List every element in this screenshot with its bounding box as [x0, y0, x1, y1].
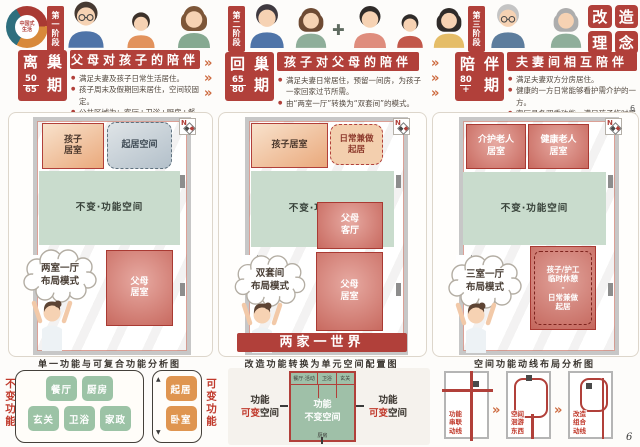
elderly-woman-avatar	[547, 4, 585, 52]
wall-pillar	[396, 283, 401, 296]
tile-bedroom: 卧室	[166, 406, 197, 431]
phase1-family-avatars	[64, 6, 214, 52]
logo-text: 中国式 生活	[15, 15, 39, 39]
period-box-phase1: 离巢 5065 期	[18, 50, 67, 101]
fixed-space-core-box: 餐厅·活动 卫浴 玄关 功能不变空间 厨房	[289, 371, 356, 442]
elderly-man-avatar	[487, 0, 529, 52]
arrow-right-icon: »	[554, 403, 562, 418]
diagram-label: 空间洄游东西	[510, 410, 525, 435]
tile-bathroom: 卫浴	[64, 406, 95, 431]
renovation-concept-title: 改 造 理 念	[588, 5, 638, 54]
diagram-label: 功能串联动线	[448, 410, 463, 435]
phase-tab-2: 第二阶段	[228, 6, 245, 52]
tile-living: 起居	[166, 376, 197, 401]
diagram-label: 改造组合动线	[572, 410, 587, 435]
cell-entry: 玄关	[337, 373, 354, 384]
phase3-title-banner: 夫妻间相互陪伴	[507, 52, 637, 71]
room-child-bedroom: 孩子居室	[42, 123, 104, 169]
swap-arrows-icon: ▲▼	[156, 377, 161, 436]
room-fixed-function-zone: 不变·功能空间	[39, 171, 180, 245]
period-char: 巢	[47, 55, 62, 70]
celebrating-person-illustration	[455, 295, 497, 357]
phase1-title-banner: 父母对孩子的陪伴	[70, 50, 200, 69]
room-care-elderly-bedroom: 介护老人居室	[466, 124, 526, 169]
phase2-parents-avatars	[246, 6, 330, 52]
circulation-diagram-combined: 改造组合动线	[568, 371, 613, 439]
age-range: 6580	[230, 76, 246, 97]
bullet-item: 满足夫妻及孩子日常生活居住。	[71, 73, 203, 84]
room-healthy-elderly-bedroom: 健康老人居室	[528, 124, 589, 169]
room-marker	[473, 381, 479, 387]
concept-char: 理	[588, 31, 612, 54]
room-living-space: 起居空间	[107, 122, 172, 169]
bullet-item: 孩子周末及假期回来居住，空间较固定。	[71, 84, 203, 107]
period-char: 陪	[460, 57, 475, 72]
floorplan-panel-phase3: N 介护老人居室 健康老人居室 不变·功能空间 孩子/护工 临时休憩 - 日常兼…	[432, 112, 639, 357]
compass-icon: N	[605, 118, 622, 135]
tile-dining: 餐厅	[46, 376, 77, 401]
age-range: 5065	[23, 75, 39, 96]
room-daily-living: 日常兼做起居	[330, 124, 383, 165]
logo-line2: 生活	[22, 27, 32, 33]
panel3-caption: 空间功能动线布局分析图	[432, 357, 637, 370]
wall-pillar	[180, 283, 185, 296]
room-flexible-guest-space: 孩子/护工 临时休憩 - 日常兼做 起居	[530, 246, 596, 330]
panel1-caption: 单一功能与可复合功能分析图	[8, 357, 211, 370]
tick-mark	[321, 437, 323, 444]
tile-entry: 玄关	[28, 406, 59, 431]
concept-char: 造	[615, 5, 639, 28]
cell-kitchen: 厨房	[291, 432, 354, 439]
period-char: 期	[484, 78, 499, 93]
compass-icon: N	[393, 118, 410, 135]
bullet-item: 健康的一方日常能够看护需介护的一方。	[508, 85, 638, 108]
phase3-elderly-avatars	[487, 6, 585, 52]
compass-icon: N	[179, 118, 196, 135]
room-parent-bedroom: 父母居室	[316, 252, 383, 331]
arrow-right-icon: »»»	[431, 57, 439, 101]
tile-kitchen: 厨房	[82, 376, 113, 401]
variable-function-legend-box: ▲▼ 起居 卧室	[152, 370, 202, 443]
daughter-in-law-avatar	[430, 4, 468, 52]
tick-mark	[280, 405, 288, 407]
age-range: 80+	[460, 76, 472, 97]
mother-avatar	[174, 2, 214, 52]
period-box-phase3: 陪伴 80+ 期	[455, 52, 504, 101]
room-parent-bedroom: 父母居室	[106, 250, 173, 326]
two-families-banner: 两家一世界	[237, 333, 407, 352]
left-variable-space-label: 功能 可变空间	[234, 394, 286, 421]
phase2-bullet-list: 满足夫妻日常居住，预留一间房，为孩子一家回家过节所需。 由“两室一厅”转换为“双…	[278, 75, 422, 109]
phase2-title-banner: 孩子对父母的陪伴	[277, 52, 419, 71]
phase-tab-1: 第一阶段	[47, 6, 64, 52]
right-variable-space-label: 功能 可变空间	[362, 394, 414, 421]
father-avatar	[246, 0, 288, 52]
page-number: 6	[626, 432, 632, 443]
room-marker	[586, 383, 592, 389]
celebrating-person-illustration	[31, 293, 73, 355]
wall-pillar	[608, 283, 613, 296]
teen-avatar	[124, 9, 158, 52]
tile-housekeeping: 家政	[100, 406, 131, 431]
room-marker	[526, 375, 532, 381]
wall-pillar	[180, 175, 185, 188]
circulation-diagram-loop: 空间洄游东西	[506, 371, 551, 439]
period-char: 期	[254, 78, 269, 93]
grandchild-avatar	[394, 11, 426, 52]
room-fixed-function-zone: 不变·功能空间	[463, 172, 606, 245]
brand-logo-icon: 中国式 生活	[6, 6, 48, 48]
room-child-bedroom: 孩子居室	[251, 123, 328, 168]
floorplan-panel-phase2: N 孩子居室 日常兼做起居 不变·功能空间 父母客厅 父母居室	[218, 112, 427, 357]
arrow-right-icon: »»»	[204, 57, 212, 101]
period-char: 期	[47, 78, 62, 93]
bullet-item: 满足夫妻日常居住，预留一间房，为孩子一家回家过节所需。	[278, 75, 422, 98]
wall-pillar	[608, 175, 613, 188]
son-avatar	[350, 2, 390, 52]
period-char: 离	[23, 55, 38, 70]
mother-avatar	[292, 4, 330, 52]
room-parent-livingroom: 父母客厅	[317, 202, 383, 249]
father-avatar	[64, 0, 108, 52]
period-box-phase2: 回巢 6580 期	[225, 52, 274, 101]
phase-tab-3: 第三阶段	[468, 6, 485, 52]
bullet-item: 满足夫妻双方分房居住。	[508, 74, 638, 85]
bullet-item: 由“两室一厅”转换为“双套间”的模式。	[278, 98, 422, 109]
variable-function-label: 可变功能	[204, 378, 219, 428]
arrow-right-icon: »	[492, 403, 500, 418]
plus-icon: ✚	[332, 21, 345, 39]
fixed-function-legend-box: 餐厅 厨房 玄关 卫浴 家政	[15, 370, 144, 443]
phase2-children-family-avatars	[350, 6, 468, 52]
concept-char: 改	[588, 5, 612, 28]
cell-dining-activity: 餐厅·活动	[291, 373, 318, 384]
period-char: 巢	[254, 57, 269, 72]
concept-char: 念	[615, 31, 639, 54]
floorplan-panel-phase1: N 孩子居室 起居空间 不变·功能空间 父母居室 两室一厅布局模式	[8, 112, 213, 357]
circulation-diagram-series: 功能串联动线	[444, 371, 489, 439]
infographic-canvas: 中国式 生活 第一阶段 第二阶段 第三阶段 ✚ 改 造 理 念 离巢 5065 …	[0, 0, 640, 447]
period-char: 伴	[484, 57, 499, 72]
period-char: 回	[230, 57, 245, 72]
cell-bathroom: 卫浴	[318, 373, 336, 384]
wall-pillar	[396, 175, 401, 188]
